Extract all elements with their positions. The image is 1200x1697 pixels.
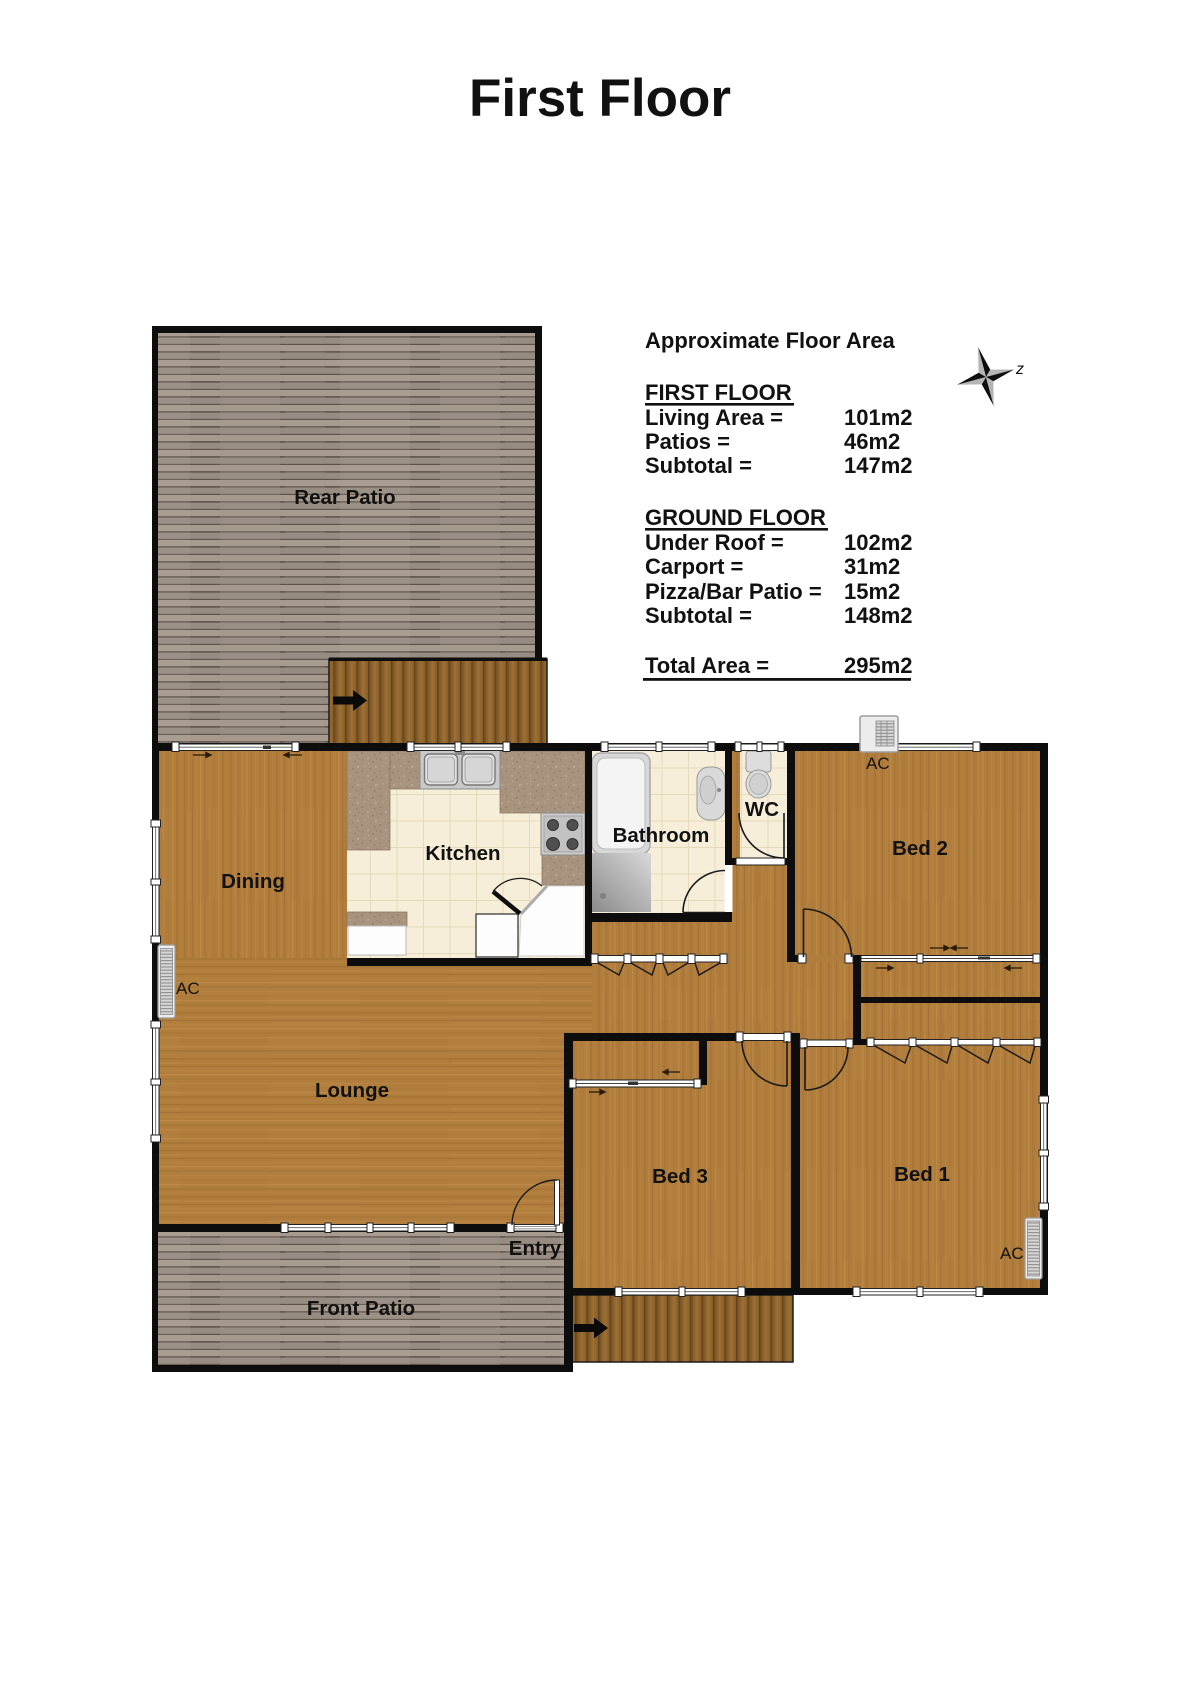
svg-text:Bed 2: Bed 2 [892,837,948,860]
svg-text:31m2: 31m2 [844,554,900,579]
svg-text:WC: WC [745,798,779,821]
svg-text:102m2: 102m2 [844,530,913,555]
svg-text:148m2: 148m2 [844,603,913,628]
svg-text:Living Area =: Living Area = [645,405,783,430]
svg-text:Bed 3: Bed 3 [652,1165,708,1188]
svg-text:46m2: 46m2 [844,429,900,454]
svg-text:FIRST FLOOR: FIRST FLOOR [645,380,792,405]
svg-text:Subtotal =: Subtotal = [645,603,752,628]
svg-text:Carport =: Carport = [645,554,743,579]
svg-text:GROUND FLOOR: GROUND FLOOR [645,505,826,530]
svg-text:Front Patio: Front Patio [307,1297,415,1320]
svg-text:z: z [1015,361,1024,378]
svg-text:Pizza/Bar Patio =: Pizza/Bar Patio = [645,579,822,604]
svg-text:Under Roof =: Under Roof = [645,530,784,555]
svg-text:AC: AC [176,979,200,998]
svg-text:101m2: 101m2 [844,405,913,430]
svg-text:AC: AC [866,754,890,773]
svg-text:Bathroom: Bathroom [613,824,710,847]
svg-text:AC: AC [1000,1244,1024,1263]
svg-text:Patios =: Patios = [645,429,730,454]
svg-text:Bed 1: Bed 1 [894,1163,950,1186]
svg-text:Lounge: Lounge [315,1079,389,1102]
svg-text:Entry: Entry [509,1237,562,1260]
svg-text:295m2: 295m2 [844,653,913,678]
svg-text:First Floor: First Floor [469,69,731,128]
svg-text:15m2: 15m2 [844,579,900,604]
svg-text:Subtotal =: Subtotal = [645,453,752,478]
svg-text:147m2: 147m2 [844,453,913,478]
svg-text:Approximate Floor Area: Approximate Floor Area [645,328,896,353]
svg-text:Dining: Dining [221,870,285,893]
svg-text:Rear Patio: Rear Patio [294,486,395,509]
svg-text:Total Area =: Total Area = [645,653,769,678]
svg-text:Kitchen: Kitchen [425,842,500,865]
